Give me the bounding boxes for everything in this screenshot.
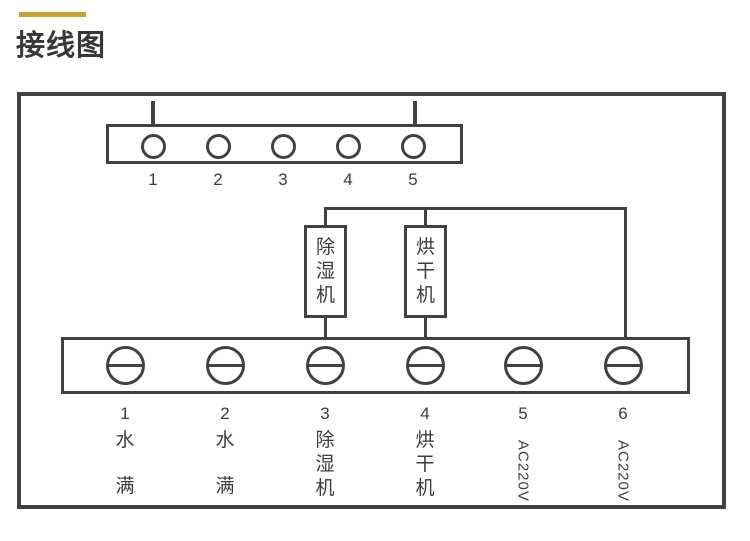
terminal-label-4: 4 烘 干 机 (403, 403, 447, 501)
terminal-label-char: 烘 (403, 429, 447, 453)
top-terminal-number-2: 2 (198, 170, 238, 190)
terminal-number: 4 (403, 403, 447, 429)
bus-wire-horizontal (326, 207, 627, 210)
top-terminal-hole-3 (271, 134, 296, 159)
top-terminal-number-5: 5 (393, 170, 433, 190)
terminal-label-char: 干 (403, 453, 447, 477)
top-terminal-number-1: 1 (133, 170, 173, 190)
screw-terminal-5 (504, 346, 543, 385)
terminal-label-char: 水 (103, 429, 147, 453)
screw-terminal-6 (604, 346, 643, 385)
screw-slot (507, 364, 540, 367)
screw-slot (607, 364, 640, 367)
terminal-label-char: 除 (303, 429, 347, 453)
terminal-label-5: 5 AC220V (501, 403, 545, 510)
screw-terminal-2 (206, 346, 245, 385)
device-label-char: 机 (416, 284, 435, 308)
terminal-number: 3 (303, 403, 347, 429)
screw-slot (409, 364, 442, 367)
terminal-number: 1 (103, 403, 147, 429)
device-label-char: 机 (316, 284, 335, 308)
connector-pin-right (413, 101, 417, 124)
device-label-char: 湿 (316, 260, 335, 284)
bottom-terminal-block (61, 337, 690, 394)
device-box-dehumidifier: 除 湿 机 (304, 225, 347, 318)
page-title: 接线图 (16, 22, 106, 64)
device-label-char: 除 (316, 236, 335, 260)
wire-bus-to-terminal-6 (624, 207, 627, 349)
screw-slot (209, 364, 242, 367)
terminal-label-char: 水 (203, 429, 247, 453)
terminal-number: 5 (501, 403, 545, 429)
terminal-label-char: 满 (203, 475, 247, 499)
terminal-label-char: 满 (103, 475, 147, 499)
wiring-diagram-page: 接线图 1 2 3 4 5 除 湿 机 烘 干 机 1 水 满 2 水 (0, 0, 750, 541)
screw-slot (109, 364, 142, 367)
terminal-label-char: 机 (303, 477, 347, 501)
screw-terminal-1 (106, 346, 145, 385)
terminal-label-char: 机 (403, 477, 447, 501)
terminal-label-2: 2 水 满 (203, 403, 247, 499)
terminal-label-3: 3 除 湿 机 (303, 403, 347, 501)
title-accent-bar (19, 12, 86, 17)
device-box-dryer: 烘 干 机 (404, 225, 447, 318)
terminal-label-ac220v: AC220V (515, 432, 532, 510)
screw-terminal-4 (406, 346, 445, 385)
terminal-label-1: 1 水 满 (103, 403, 147, 499)
wire-bus-to-dehumidifier (324, 207, 327, 226)
terminal-label-6: 6 AC220V (601, 403, 645, 510)
top-terminal-number-3: 3 (263, 170, 303, 190)
top-terminal-number-4: 4 (328, 170, 368, 190)
top-terminal-hole-2 (206, 134, 231, 159)
terminal-number: 2 (203, 403, 247, 429)
screw-slot (309, 364, 342, 367)
top-terminal-hole-5 (401, 134, 426, 159)
device-label-char: 烘 (416, 236, 435, 260)
connector-pin-left (151, 101, 155, 124)
top-terminal-hole-4 (336, 134, 361, 159)
wire-bus-to-dryer (424, 207, 427, 226)
screw-terminal-3 (306, 346, 345, 385)
terminal-number: 6 (601, 403, 645, 429)
top-terminal-hole-1 (141, 134, 166, 159)
device-label-char: 干 (416, 260, 435, 284)
terminal-label-ac220v: AC220V (615, 432, 632, 510)
terminal-label-char: 湿 (303, 453, 347, 477)
